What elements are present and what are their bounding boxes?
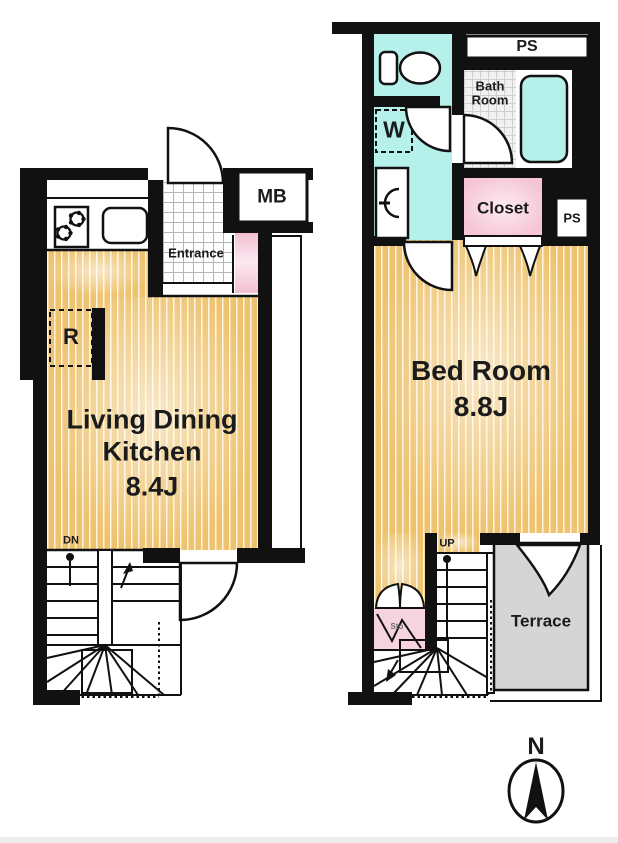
bathtub-icon bbox=[521, 76, 567, 162]
washbasin-icon bbox=[376, 168, 408, 238]
refrigerator-label: R bbox=[63, 326, 79, 348]
north-label: N bbox=[527, 735, 544, 759]
closet-label: Closet bbox=[477, 200, 529, 217]
toilet-door-arc bbox=[406, 107, 450, 151]
bedroom-door-arc bbox=[404, 242, 452, 290]
ps-top-label: PS bbox=[516, 39, 537, 55]
bedroom-size-label: 8.8J bbox=[454, 393, 509, 421]
storage-double-door bbox=[376, 584, 424, 608]
ldk-name-line2: Kitchen bbox=[102, 439, 201, 466]
sink-icon bbox=[103, 208, 147, 243]
stove-icon bbox=[55, 207, 88, 247]
stairs-1f bbox=[47, 550, 181, 695]
closet-door-swings bbox=[466, 246, 540, 276]
entrance-door-arc bbox=[168, 128, 223, 183]
terrace-label: Terrace bbox=[511, 613, 571, 630]
bedroom-name-label: Bed Room bbox=[411, 357, 551, 385]
floorplan-page: MB Entrance R Living Dining Kitchen 8.4J… bbox=[0, 0, 618, 843]
dn-label: DN bbox=[63, 536, 79, 547]
ldk-name-line1: Living Dining bbox=[67, 407, 238, 434]
storage-label: Sto bbox=[391, 623, 404, 631]
compass-icon bbox=[509, 760, 563, 822]
ldk-size-label: 8.4J bbox=[126, 474, 179, 501]
handrail-dotted-2f bbox=[412, 600, 491, 697]
entrance-label: Entrance bbox=[168, 247, 224, 260]
terrace-door-swing bbox=[517, 545, 580, 595]
closet-door-track bbox=[464, 236, 542, 246]
bath-label-line1: Bath bbox=[476, 80, 505, 93]
mb-label: MB bbox=[257, 188, 287, 207]
washer-label: W bbox=[383, 119, 405, 142]
bath-label-line2: Room bbox=[472, 94, 509, 107]
ps-side-label: PS bbox=[563, 212, 580, 225]
toilet-icon bbox=[380, 52, 440, 84]
stairwell-door-arc-1f bbox=[180, 563, 237, 620]
bathroom-door-arc bbox=[464, 115, 512, 163]
up-label: UP bbox=[439, 539, 454, 550]
